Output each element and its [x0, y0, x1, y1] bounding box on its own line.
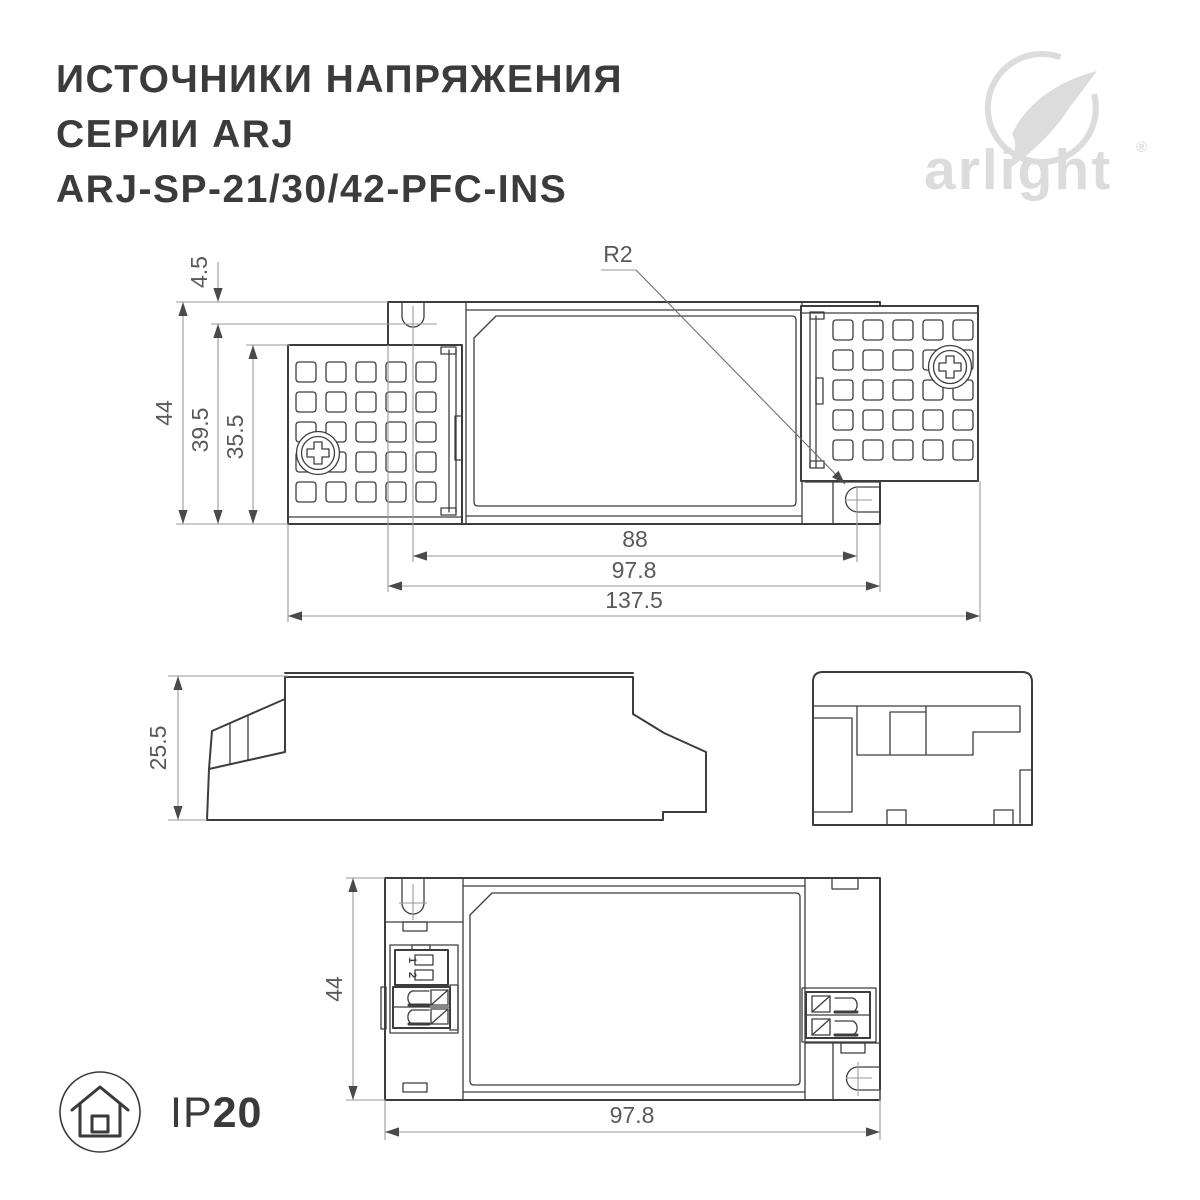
left-cover	[288, 345, 462, 524]
mount-ear-bottom-right	[805, 1043, 880, 1100]
clip-tab	[841, 1043, 865, 1053]
end-view	[813, 672, 1032, 825]
radius-label: R2	[603, 241, 632, 267]
dip-switch: 1 2	[395, 945, 448, 985]
mount-ear-bottom-right	[805, 482, 880, 524]
ip-rating: IP20	[170, 1089, 262, 1137]
clip-tab	[403, 1083, 427, 1092]
dip-label-1: 1	[406, 957, 418, 963]
end-foot-left	[887, 810, 906, 825]
end-outline	[813, 672, 1032, 825]
dim-44-top: 44	[151, 302, 188, 524]
page: ИСТОЧНИКИ НАПРЯЖЕНИЯ СЕРИИ ARJ ARJ-SP-21…	[0, 0, 1200, 1200]
bottom-view: 1 2	[321, 878, 880, 1140]
top-view: 44 4.5 39.5 35.5 88	[151, 241, 980, 622]
dim-label: 44	[151, 400, 177, 426]
top-view-body	[288, 302, 978, 524]
ip-prefix: IP	[170, 1089, 213, 1137]
screw-left	[297, 432, 340, 475]
dim-label: 137.5	[605, 587, 663, 613]
dim-label: 97.8	[610, 1102, 655, 1128]
logo-wordmark: arlight	[924, 138, 1112, 202]
dim-label: 39.5	[187, 408, 213, 453]
side-rib-lines	[230, 716, 248, 764]
title-line-3: ARJ-SP-21/30/42-PFC-INS	[56, 168, 567, 211]
dim-label: 4.5	[186, 256, 212, 288]
dim-25-5: 25.5	[145, 676, 183, 820]
label-area	[474, 316, 796, 506]
dim-97-8: 97.8	[388, 557, 880, 591]
end-internal-lines	[813, 706, 1032, 823]
right-cover-outline	[801, 306, 978, 481]
house-icon	[72, 1087, 128, 1136]
clip-tab	[832, 878, 858, 889]
header: ИСТОЧНИКИ НАПРЯЖЕНИЯ СЕРИИ ARJ ARJ-SP-21…	[56, 58, 623, 211]
ip-value: 20	[213, 1089, 263, 1137]
dim-88: 88	[413, 526, 857, 561]
brand-logo: arlight ®	[924, 54, 1147, 202]
dim-label: 35.5	[222, 415, 248, 460]
dim-label: 44	[321, 976, 347, 1002]
terminal-block-left	[393, 985, 458, 1030]
side-view-dimensions: 25.5	[145, 676, 288, 820]
terminal-side-flange	[450, 985, 458, 1030]
end-foot-right	[994, 810, 1013, 825]
label-area	[470, 893, 800, 1085]
dim-4-5: 4.5	[186, 256, 223, 364]
dim-35-5: 35.5	[222, 345, 258, 524]
clip-tab	[403, 922, 427, 931]
bottom-view-body: 1 2	[381, 878, 880, 1100]
side-profile-outline	[207, 673, 706, 820]
title-line-1: ИСТОЧНИКИ НАПРЯЖЕНИЯ	[56, 58, 623, 101]
dim-label: 88	[622, 526, 648, 552]
dim-label: 25.5	[145, 726, 171, 771]
logo-registered-mark: ®	[1136, 139, 1147, 156]
dim-label: 97.8	[612, 557, 657, 583]
badge-circle	[60, 1072, 140, 1152]
title-line-2: СЕРИИ ARJ	[56, 113, 295, 156]
dim-44-bottom: 44	[321, 878, 358, 1100]
right-cover	[801, 306, 978, 481]
technical-drawing: ИСТОЧНИКИ НАПРЯЖЕНИЯ СЕРИИ ARJ ARJ-SP-21…	[0, 0, 1200, 1200]
extension-lines	[168, 676, 288, 820]
terminal-block-right	[806, 992, 870, 1038]
dip-label-2: 2	[406, 972, 418, 978]
ip-badge: IP20	[60, 1072, 262, 1152]
screw-right	[929, 346, 972, 389]
side-view: 25.5	[145, 673, 706, 820]
dim-137-5: 137.5	[288, 587, 980, 621]
dim-39-5: 39.5	[187, 324, 223, 524]
dim-97-8-bottom: 97.8	[385, 1102, 880, 1137]
